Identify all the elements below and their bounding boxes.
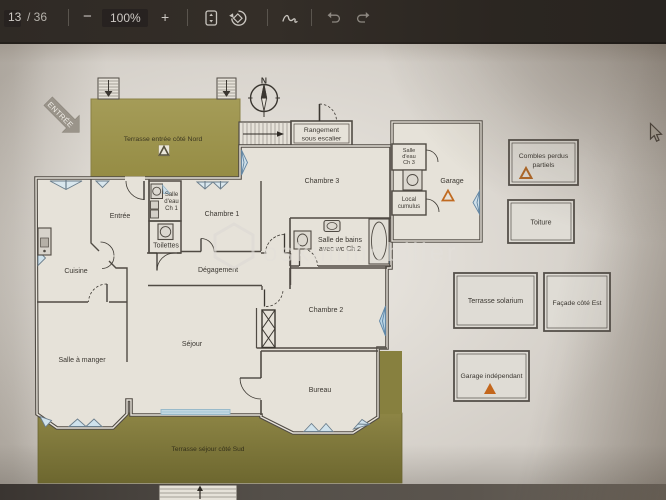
svg-text:N: N [261, 76, 267, 86]
svg-text:Terrasse séjour côté Sud: Terrasse séjour côté Sud [172, 446, 245, 453]
svg-text:Terrasse solarium: Terrasse solarium [468, 298, 523, 305]
svg-text:partiels: partiels [533, 162, 556, 169]
svg-text:Local: Local [402, 197, 416, 203]
svg-text:Séjour: Séjour [182, 341, 203, 348]
svg-text:Garage indépendant: Garage indépendant [461, 373, 523, 380]
svg-text:Chambre 2: Chambre 2 [309, 307, 344, 314]
svg-text:Ch 3: Ch 3 [403, 160, 415, 166]
svg-text:Chambre 3: Chambre 3 [305, 178, 340, 185]
svg-text:Toilettes: Toilettes [153, 243, 179, 250]
svg-text:Terrasse entrée côté Nord: Terrasse entrée côté Nord [124, 136, 203, 143]
svg-text:Salle: Salle [165, 192, 179, 198]
svg-text:d'eau: d'eau [164, 199, 179, 205]
svg-text:Façade côté Est: Façade côté Est [552, 300, 601, 307]
svg-text:sous escalier: sous escalier [302, 136, 342, 143]
svg-text:Entrée: Entrée [110, 213, 131, 220]
svg-text:Combles perdus: Combles perdus [519, 153, 569, 160]
svg-text:cumulus: cumulus [398, 204, 420, 210]
svg-text:Ch 1: Ch 1 [165, 206, 178, 212]
svg-text:Toiture: Toiture [530, 220, 551, 227]
svg-text:Bureau: Bureau [309, 387, 332, 394]
svg-text:Salle à manger: Salle à manger [58, 357, 106, 364]
svg-text:Rangement: Rangement [304, 127, 339, 134]
svg-text:ENTRÉE: ENTRÉE [46, 100, 76, 130]
svg-text:Cuisine: Cuisine [64, 268, 87, 275]
svg-text:Chambre 1: Chambre 1 [205, 211, 240, 218]
svg-text:Garage: Garage [440, 178, 463, 185]
svg-text:oskimmobilier: oskimmobilier [263, 237, 458, 267]
